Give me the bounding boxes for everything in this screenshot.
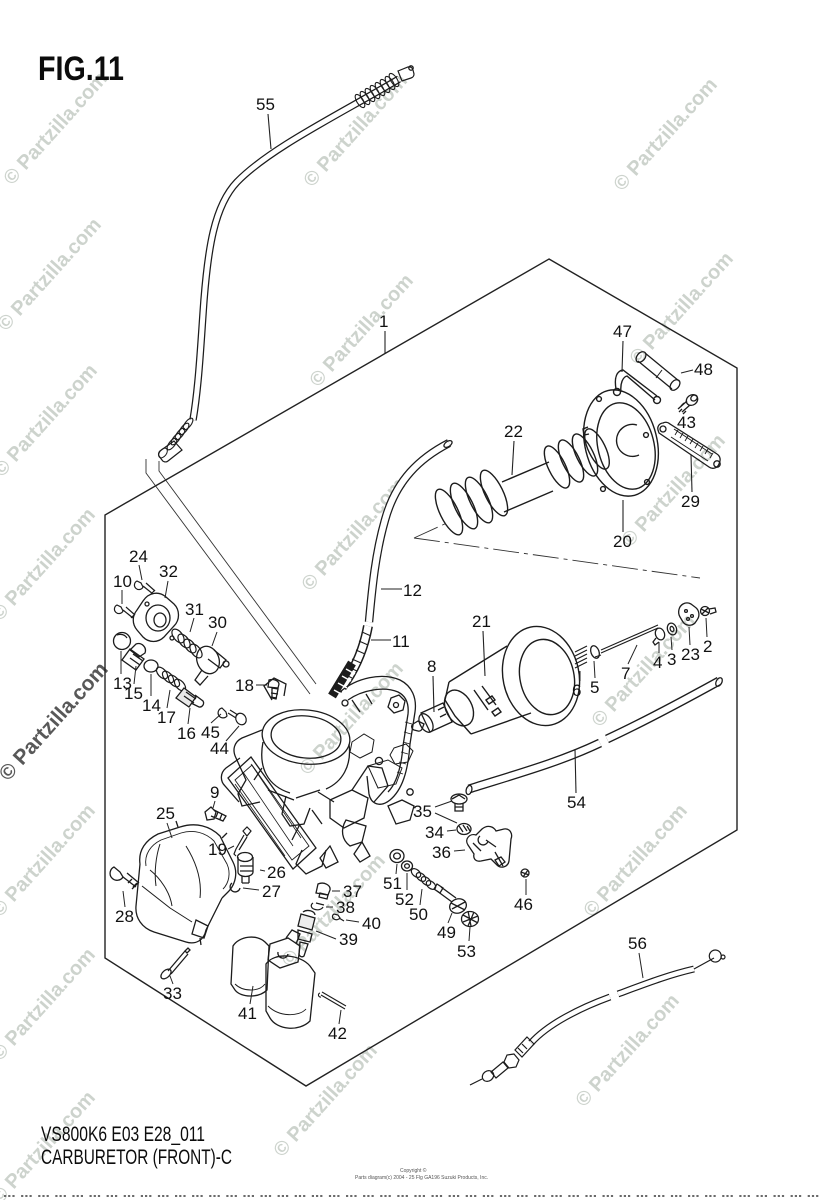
svg-text:15: 15: [124, 684, 143, 703]
svg-text:© Partzilla.com: © Partzilla.com: [0, 658, 113, 786]
svg-text:31: 31: [185, 600, 204, 619]
svg-text:46: 46: [514, 895, 533, 914]
svg-text:2: 2: [703, 637, 712, 656]
svg-text:© Partzilla.com: © Partzilla.com: [0, 800, 100, 921]
svg-text:9: 9: [210, 783, 219, 802]
svg-text:39: 39: [339, 930, 358, 949]
svg-text:56: 56: [628, 934, 647, 953]
svg-text:© Partzilla.com: © Partzilla.com: [617, 430, 729, 551]
svg-text:22: 22: [504, 422, 523, 441]
svg-text:© Partzilla.com: © Partzilla.com: [0, 214, 106, 335]
svg-text:30: 30: [208, 613, 227, 632]
svg-text:47: 47: [613, 322, 632, 341]
svg-text:27: 27: [262, 882, 281, 901]
svg-text:16: 16: [177, 724, 196, 743]
svg-text:© Partzilla.com: © Partzilla.com: [0, 504, 100, 625]
svg-text:28: 28: [115, 907, 134, 926]
svg-text:54: 54: [567, 793, 586, 812]
svg-text:44: 44: [210, 739, 229, 758]
svg-text:53: 53: [457, 942, 476, 961]
svg-text:11: 11: [392, 632, 410, 651]
svg-text:1: 1: [379, 312, 388, 331]
svg-text:36: 36: [432, 843, 451, 862]
svg-text:VS800K6 E03 E28_011: VS800K6 E03 E28_011: [41, 1123, 205, 1146]
svg-text:35: 35: [413, 802, 432, 821]
svg-text:© Partzilla.com: © Partzilla.com: [305, 270, 417, 391]
svg-text:21: 21: [472, 612, 491, 631]
svg-text:18: 18: [235, 676, 254, 695]
svg-text:6: 6: [572, 681, 581, 700]
svg-text:34: 34: [425, 823, 444, 842]
svg-text:32: 32: [159, 562, 178, 581]
svg-text:12: 12: [403, 581, 422, 600]
svg-text:38: 38: [336, 898, 355, 917]
svg-text:© Partzilla.com: © Partzilla.com: [609, 74, 721, 195]
svg-text:50: 50: [409, 905, 428, 924]
svg-text:24: 24: [129, 547, 148, 566]
svg-text:48: 48: [694, 360, 713, 379]
svg-text:17: 17: [157, 708, 176, 727]
svg-text:10: 10: [113, 572, 132, 591]
svg-text:41: 41: [238, 1004, 257, 1023]
svg-text:7: 7: [621, 664, 630, 683]
svg-text:5: 5: [590, 678, 599, 697]
svg-text:26: 26: [267, 863, 286, 882]
svg-text:8: 8: [427, 657, 436, 676]
svg-text:4: 4: [653, 653, 662, 672]
svg-text:FIG.11: FIG.11: [38, 50, 124, 88]
svg-text:Copyright ©: Copyright ©: [400, 1167, 427, 1174]
svg-text:© Partzilla.com: © Partzilla.com: [269, 1040, 381, 1161]
svg-text:55: 55: [256, 95, 275, 114]
svg-text:20: 20: [613, 532, 632, 551]
svg-text:42: 42: [328, 1024, 347, 1043]
svg-text:© Partzilla.com: © Partzilla.com: [0, 944, 100, 1065]
svg-text:© Partzilla.com: © Partzilla.com: [579, 800, 691, 921]
svg-text:Parts diagram(c) 2004 - 25 Flg: Parts diagram(c) 2004 - 25 Flg GA196 Suz…: [355, 1175, 488, 1181]
svg-text:25: 25: [156, 804, 175, 823]
svg-text:3: 3: [667, 650, 676, 669]
svg-text:49: 49: [437, 923, 456, 942]
svg-text:© Partzilla.com: © Partzilla.com: [0, 360, 102, 481]
svg-text:CARBURETOR (FRONT)-C: CARBURETOR (FRONT)-C: [41, 1146, 232, 1169]
svg-text:40: 40: [362, 914, 381, 933]
svg-text:23: 23: [681, 645, 700, 664]
svg-text:29: 29: [681, 492, 700, 511]
svg-text:43: 43: [677, 413, 696, 432]
svg-text:33: 33: [163, 984, 182, 1003]
svg-text:© Partzilla.com: © Partzilla.com: [587, 610, 699, 731]
